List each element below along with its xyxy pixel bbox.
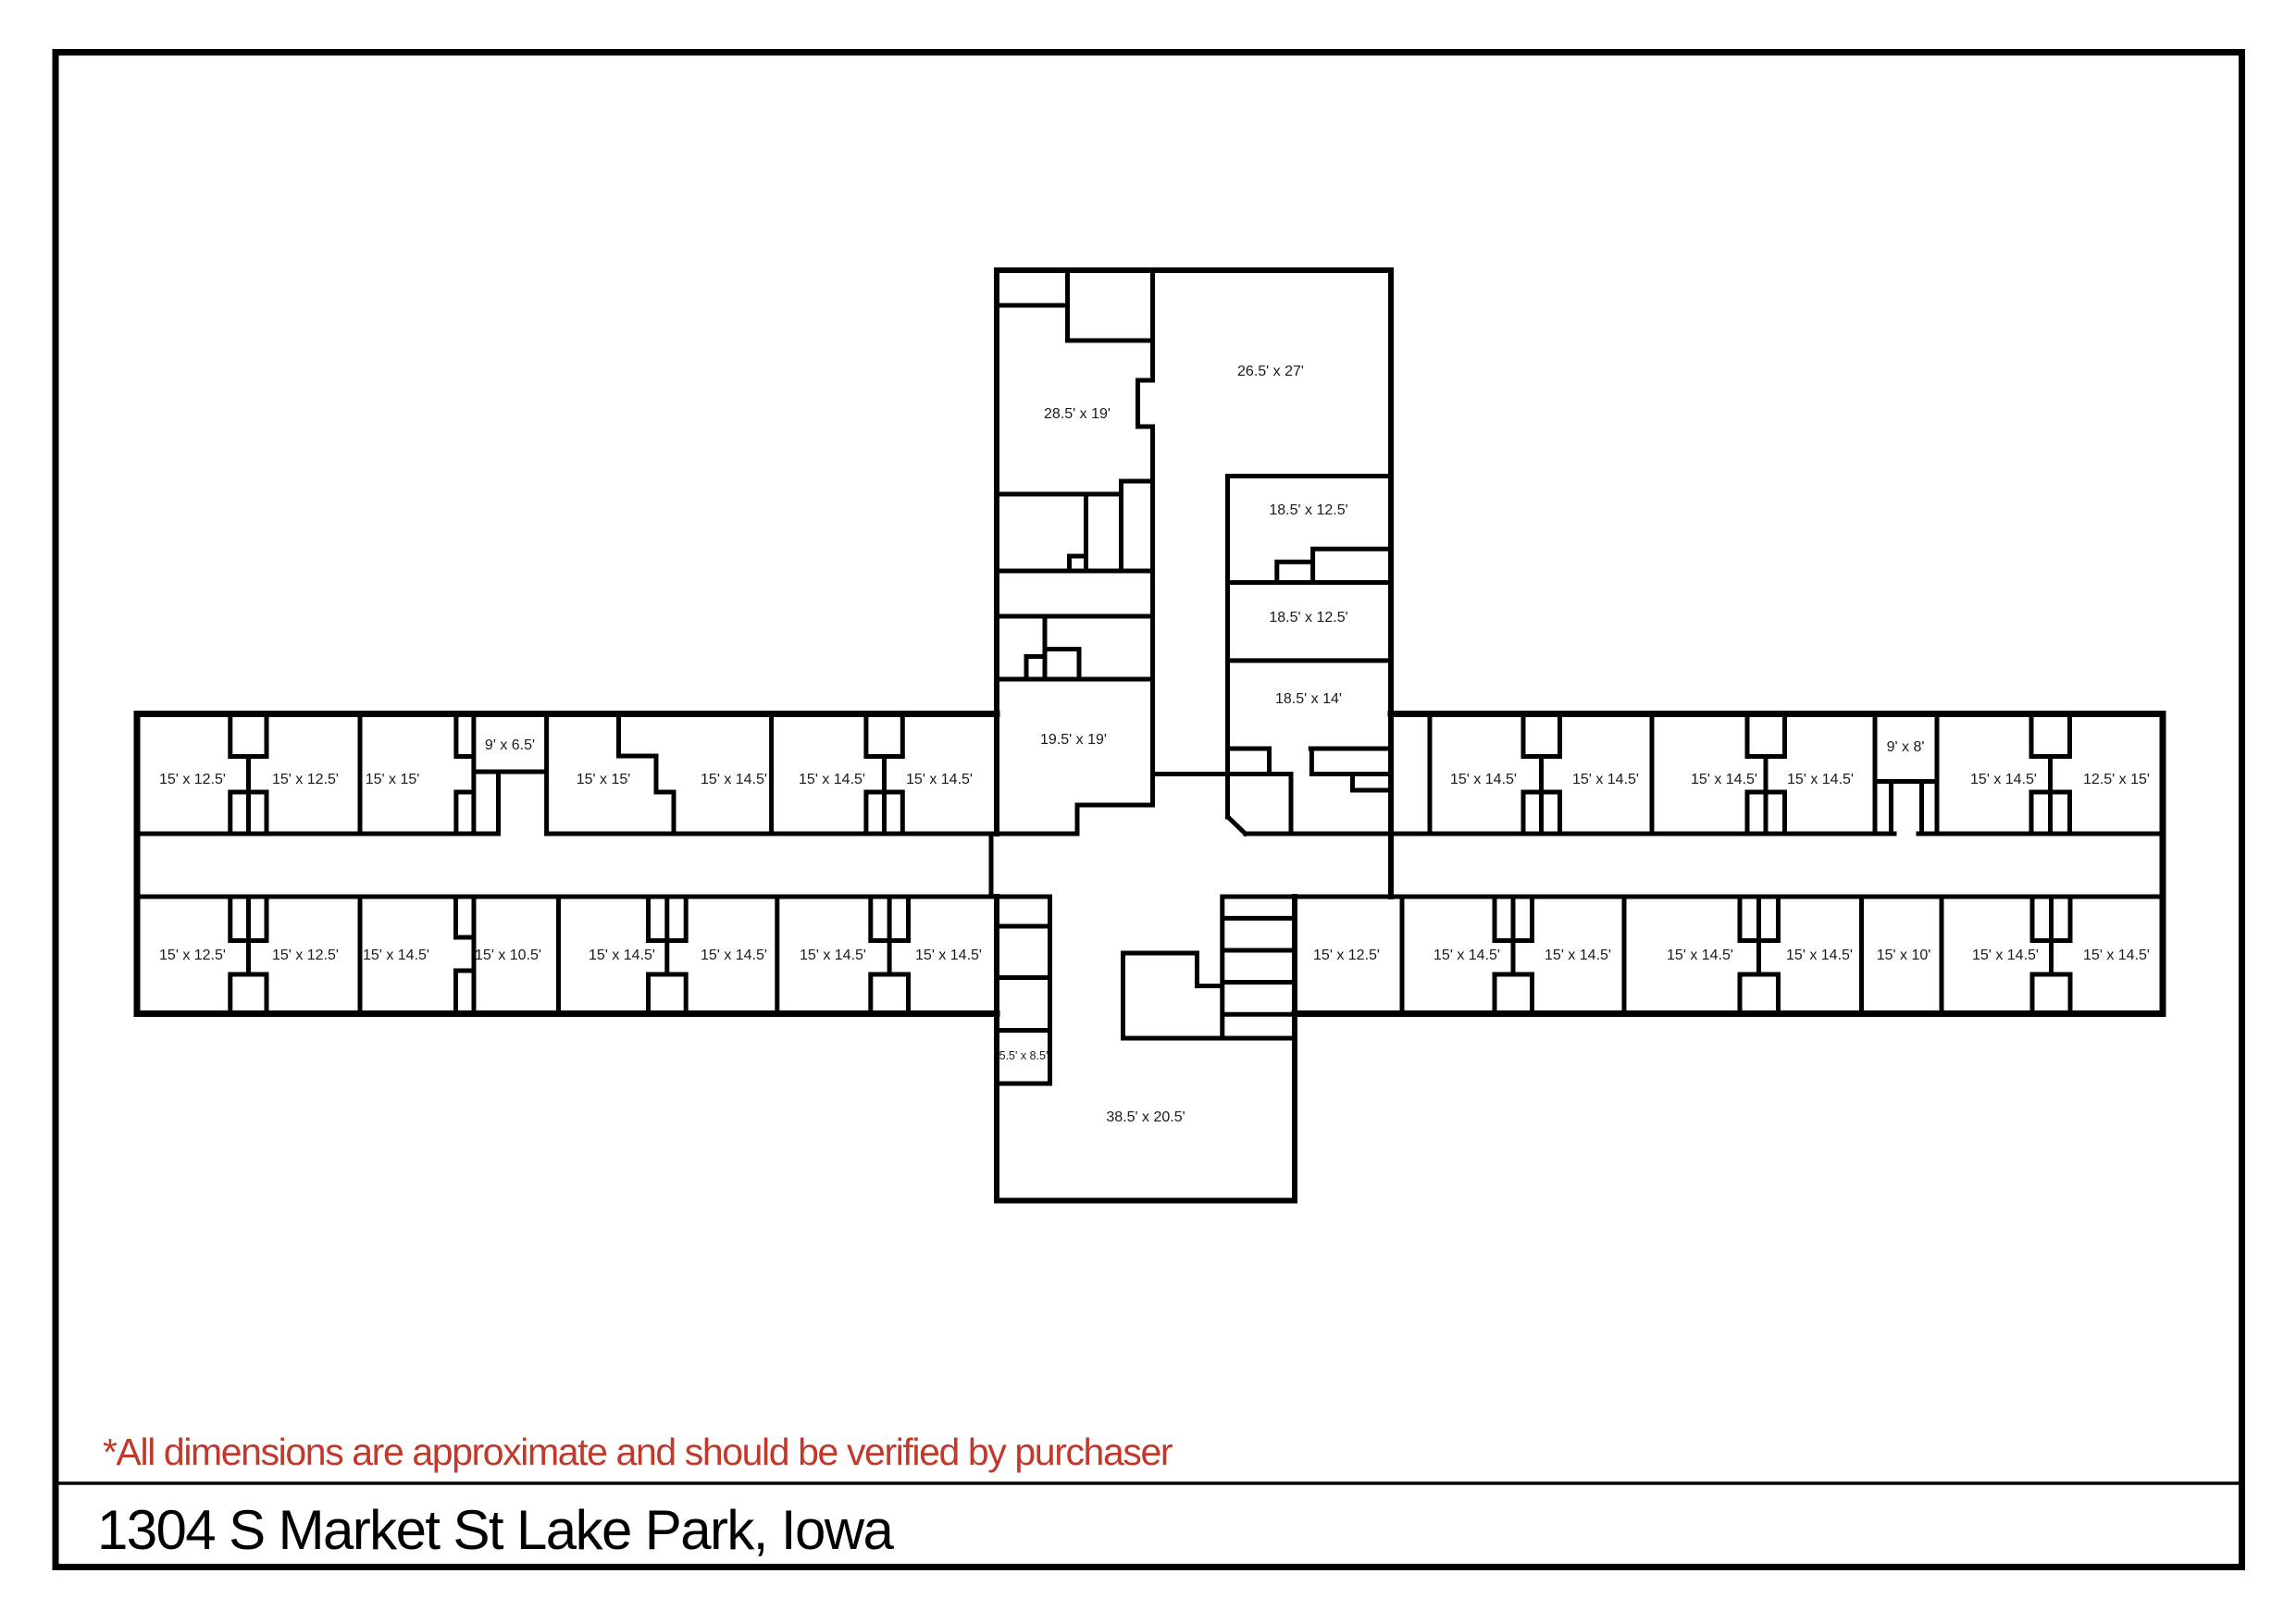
svg-text:15' x 14.5': 15' x 14.5' [589,948,655,963]
svg-text:15' x 14.5': 15' x 14.5' [799,772,865,787]
svg-text:15' x 14.5': 15' x 14.5' [1667,948,1733,963]
svg-text:15' x 14.5': 15' x 14.5' [915,948,982,963]
svg-text:15' x 14.5': 15' x 14.5' [1433,948,1500,963]
svg-text:5.5' x 8.5': 5.5' x 8.5' [999,1049,1049,1062]
svg-text:15' x 12.5': 15' x 12.5' [272,948,339,963]
svg-text:12.5' x 15': 12.5' x 15' [2083,772,2150,787]
svg-text:15' x 14.5': 15' x 14.5' [1787,772,1854,787]
svg-text:9' x 8': 9' x 8' [1887,739,1925,755]
svg-text:26.5' x 27': 26.5' x 27' [1237,364,1304,379]
svg-text:15' x 14.5': 15' x 14.5' [701,948,767,963]
svg-text:18.5' x 12.5': 18.5' x 12.5' [1269,502,1347,518]
svg-text:15' x 14.5': 15' x 14.5' [1786,948,1853,963]
svg-text:9' x 6.5': 9' x 6.5' [485,737,535,753]
svg-text:15' x 14.5': 15' x 14.5' [363,948,429,963]
svg-text:15' x 10.5': 15' x 10.5' [475,948,541,963]
svg-text:15' x 14.5': 15' x 14.5' [906,772,973,787]
svg-text:38.5' x 20.5': 38.5' x 20.5' [1106,1109,1185,1125]
svg-text:28.5' x 19': 28.5' x 19' [1044,406,1111,422]
svg-text:15' x 14.5': 15' x 14.5' [1572,772,1639,787]
svg-text:15' x 14.5': 15' x 14.5' [1545,948,1611,963]
svg-text:15' x 10': 15' x 10' [1877,948,1931,963]
svg-text:15' x 14.5': 15' x 14.5' [1450,772,1517,787]
svg-text:15' x 12.5': 15' x 12.5' [1313,948,1380,963]
svg-text:15' x 14.5': 15' x 14.5' [1970,772,2037,787]
svg-text:1304 S Market St Lake Park, Io: 1304 S Market St Lake Park, Iowa [97,1499,894,1561]
svg-text:19.5' x 19': 19.5' x 19' [1040,732,1107,748]
svg-text:18.5' x 14': 18.5' x 14' [1275,691,1342,707]
svg-text:15' x 14.5': 15' x 14.5' [2083,948,2150,963]
svg-text:*All dimensions are approximat: *All dimensions are approximate and shou… [103,1431,1173,1473]
svg-text:15' x 15': 15' x 15' [366,772,420,787]
svg-text:15' x 14.5': 15' x 14.5' [800,948,866,963]
svg-text:15' x 12.5': 15' x 12.5' [272,772,339,787]
svg-text:15' x 14.5': 15' x 14.5' [1972,948,2039,963]
svg-text:15' x 14.5': 15' x 14.5' [1691,772,1757,787]
svg-text:15' x 14.5': 15' x 14.5' [701,772,767,787]
svg-text:15' x 12.5': 15' x 12.5' [159,772,226,787]
svg-text:18.5' x 12.5': 18.5' x 12.5' [1269,610,1347,626]
svg-text:15' x 15': 15' x 15' [577,772,631,787]
svg-text:15' x 12.5': 15' x 12.5' [159,948,226,963]
